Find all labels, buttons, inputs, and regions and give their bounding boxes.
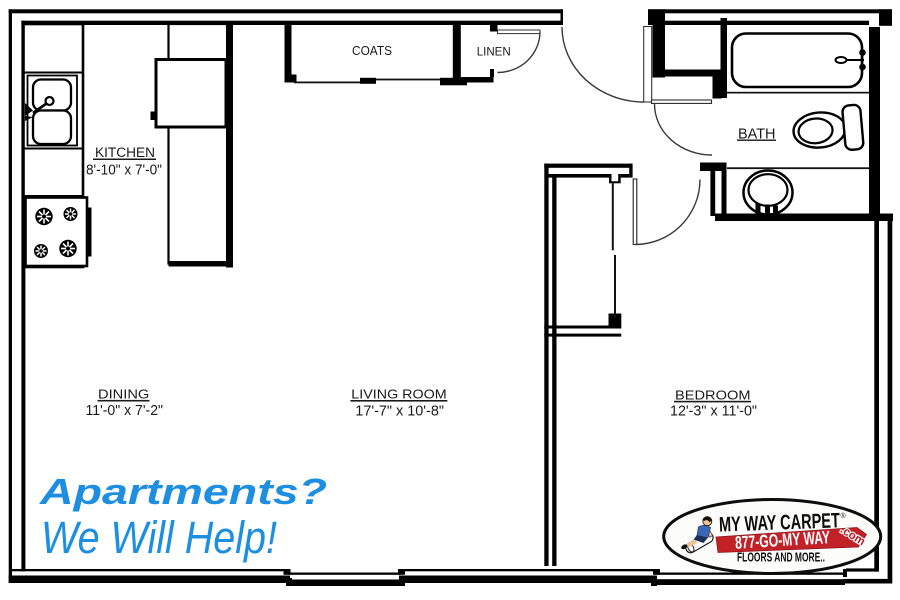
svg-text:COATS: COATS — [352, 44, 392, 58]
svg-text:Apartments?: Apartments? — [39, 471, 327, 512]
svg-text:KITCHEN: KITCHEN — [95, 145, 155, 160]
svg-text:LINEN: LINEN — [477, 45, 511, 59]
svg-text:LIVING ROOM: LIVING ROOM — [351, 388, 446, 402]
svg-text:11'-0" x 7'-2": 11'-0" x 7'-2" — [86, 403, 164, 419]
svg-text:BEDROOM: BEDROOM — [675, 388, 751, 402]
svg-text:We Will Help!: We Will Help! — [41, 512, 277, 563]
svg-text:12'-3" x 11'-0": 12'-3" x 11'-0" — [670, 404, 757, 420]
svg-text:DINING: DINING — [98, 388, 149, 402]
svg-text:17'-7" x 10'-8": 17'-7" x 10'-8" — [355, 403, 444, 419]
svg-text:8'-10" x 7'-0": 8'-10" x 7'-0" — [86, 163, 162, 179]
svg-text:MY WAY CARPET: MY WAY CARPET — [719, 509, 841, 536]
svg-text:FLOORS AND MORE..: FLOORS AND MORE.. — [737, 550, 825, 565]
svg-text:®: ® — [841, 512, 847, 520]
